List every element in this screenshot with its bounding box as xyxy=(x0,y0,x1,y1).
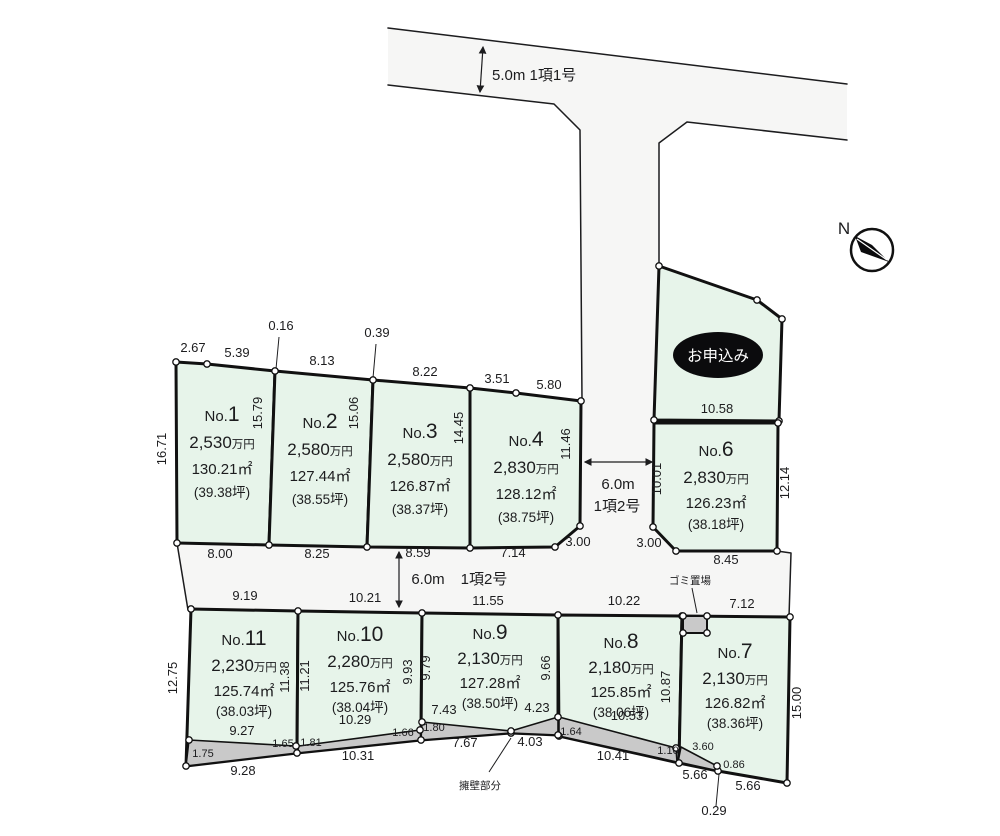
dimension-label: 1.65 xyxy=(272,738,293,750)
plot-area-size: 127.44㎡ xyxy=(290,468,351,485)
plot-area-size: 125.76㎡ xyxy=(330,679,391,696)
garbage-station-box xyxy=(683,616,707,633)
boundary-node xyxy=(774,548,780,554)
dimension-label: 10.31 xyxy=(342,748,375,763)
dimension-label: 10.87 xyxy=(658,671,673,704)
road-label-middle-type: 1項2号 xyxy=(461,571,508,588)
road-label-vertical-type: 1項2号 xyxy=(594,498,641,515)
dimension-label: 5.39 xyxy=(224,345,249,360)
plot-tsubo: (38.04坪) xyxy=(332,700,388,715)
boundary-node xyxy=(577,523,583,529)
dimension-label: 9.93 xyxy=(400,659,415,684)
boundary-node xyxy=(676,760,682,766)
dimension-label: 8.45 xyxy=(713,552,738,567)
dimension-label: 0.16 xyxy=(268,318,293,333)
retaining-wall-label: 擁壁部分 xyxy=(459,779,501,792)
boundary-node xyxy=(508,728,514,734)
boundary-node xyxy=(552,544,558,550)
dimension-label: 0.29 xyxy=(701,803,726,818)
boundary-node xyxy=(651,417,657,423)
site-plan-svg: 2.675.390.168.130.398.223.515.8016.7115.… xyxy=(0,0,1000,836)
plot-area-size: 126.87㎡ xyxy=(390,478,451,495)
dimension-label: 10.01 xyxy=(649,463,664,496)
plot-area-size: 128.12㎡ xyxy=(496,486,557,503)
plot-tsubo: (38.75坪) xyxy=(498,510,554,525)
dimension-label: 9.66 xyxy=(538,655,553,680)
dimension-label: 10.22 xyxy=(608,593,641,608)
dimension-label: 9.28 xyxy=(230,763,255,778)
boundary-node xyxy=(704,613,710,619)
boundary-node xyxy=(680,630,686,636)
plot-tsubo: (38.36坪) xyxy=(707,716,763,731)
boundary-node xyxy=(173,359,179,365)
boundary-node xyxy=(419,610,425,616)
boundary-node xyxy=(754,297,760,303)
boundary-node xyxy=(467,385,473,391)
dimension-label: 1.80 xyxy=(423,722,444,734)
plot-area-size: 125.74㎡ xyxy=(214,683,275,700)
dimension-label: 5.66 xyxy=(682,767,707,782)
road-edge-right xyxy=(659,122,847,266)
dimension-label: 15.79 xyxy=(250,397,265,430)
plot-tsubo: (38.03坪) xyxy=(216,704,272,719)
boundary-node xyxy=(272,368,278,374)
plot-tsubo: (38.55坪) xyxy=(292,492,348,507)
dimension-label: 12.75 xyxy=(165,662,180,695)
boundary-node xyxy=(188,606,194,612)
dimension-label: 8.22 xyxy=(412,364,437,379)
garbage-station-label: ゴミ置場 xyxy=(669,574,711,587)
dimension-label: 7.12 xyxy=(729,596,754,611)
dimension-label: 16.71 xyxy=(154,433,169,466)
boundary-node xyxy=(650,524,656,530)
dimension-label: 11.38 xyxy=(277,661,292,693)
dimension-label: 11.21 xyxy=(297,660,312,692)
dimension-label: 15.06 xyxy=(346,397,361,430)
boundary-node xyxy=(417,727,423,733)
dimension-label: 1.75 xyxy=(192,748,213,760)
boundary-node xyxy=(680,613,686,619)
boundary-node xyxy=(418,737,424,743)
road-label-vertical-width: 6.0m xyxy=(601,476,634,493)
boundary-node xyxy=(204,361,210,367)
boundary-node xyxy=(704,630,710,636)
dimension-label: 14.45 xyxy=(451,412,466,445)
boundary-node xyxy=(779,316,785,322)
boundary-node xyxy=(174,540,180,546)
dimension-label: 3.00 xyxy=(565,534,590,549)
dimension-label: 0.39 xyxy=(364,325,389,340)
dimension-label: 9.19 xyxy=(232,588,257,603)
boundary-node xyxy=(266,542,272,548)
site-plan-page: 2.675.390.168.130.398.223.515.8016.7115.… xyxy=(0,0,1000,836)
dimension-label: 8.25 xyxy=(304,546,329,561)
boundary-node xyxy=(183,763,189,769)
plot-1-area xyxy=(176,362,275,545)
leader-039 xyxy=(373,344,376,378)
boundary-node xyxy=(294,750,300,756)
dimension-label: 2.67 xyxy=(180,340,205,355)
plot-tsubo: (38.18坪) xyxy=(688,517,744,532)
boundary-node xyxy=(295,608,301,614)
boundary-node xyxy=(578,398,584,404)
road-label-top: 5.0m 1項1号 xyxy=(492,67,576,84)
compass-n-label: N xyxy=(838,219,850,238)
dimension-label: 5.66 xyxy=(735,778,760,793)
road-label-middle-width: 6.0m xyxy=(411,571,444,588)
boundary-node xyxy=(293,743,299,749)
boundary-node xyxy=(467,545,473,551)
dimension-label: 1.10 xyxy=(657,745,678,757)
plot-tsubo: (38.37坪) xyxy=(392,502,448,517)
dimension-label: 10.21 xyxy=(349,590,382,605)
dimension-label: 1.64 xyxy=(560,726,581,738)
leader-029 xyxy=(716,774,719,806)
plot-area-size: 130.21㎡ xyxy=(192,461,253,478)
plot-area-size: 127.28㎡ xyxy=(460,675,521,692)
dimension-label: 7.43 xyxy=(431,702,456,717)
dimension-label: 1.81 xyxy=(300,737,321,749)
boundary-node xyxy=(787,614,793,620)
plot-tsubo: (38.50坪) xyxy=(462,696,518,711)
boundary-node xyxy=(364,544,370,550)
dimension-label: 3.51 xyxy=(484,371,509,386)
leader-wall xyxy=(489,738,511,772)
boundary-node xyxy=(673,548,679,554)
dimension-label: 9.27 xyxy=(229,723,254,738)
dimension-label: 4.23 xyxy=(524,700,549,715)
boundary-node xyxy=(555,714,561,720)
dimension-label: 4.03 xyxy=(517,734,542,749)
dimension-label: 8.59 xyxy=(405,545,430,560)
compass: N xyxy=(838,219,893,271)
plot-area-size: 126.23㎡ xyxy=(686,495,747,512)
boundary-node xyxy=(513,390,519,396)
plot-5-application-badge: お申込み xyxy=(673,332,763,378)
dimension-label: 9.79 xyxy=(418,655,433,680)
dimension-label: 10.41 xyxy=(597,748,630,763)
dimension-label: 11.46 xyxy=(558,428,573,460)
dimension-label: 10.58 xyxy=(701,401,734,416)
plot-area-size: 126.82㎡ xyxy=(705,695,766,712)
dimension-label: 15.00 xyxy=(789,687,804,720)
plot-10-label: No.10 2,280万円 125.76㎡ (38.04坪) xyxy=(327,623,393,715)
dimension-label: 7.67 xyxy=(452,735,477,750)
dimension-label: 12.14 xyxy=(777,467,792,500)
plot-tsubo: (39.38坪) xyxy=(194,485,250,500)
dimension-label: 0.86 xyxy=(723,759,744,771)
boundary-node xyxy=(714,763,720,769)
dimension-label: 7.14 xyxy=(500,545,525,560)
road-edge-left xyxy=(388,85,582,401)
boundary-node xyxy=(186,737,192,743)
boundary-node xyxy=(555,612,561,618)
boundary-node xyxy=(370,377,376,383)
plot-area-size: 125.85㎡ xyxy=(591,684,652,701)
dimension-label: 1.66 xyxy=(392,727,413,739)
boundary-node xyxy=(775,420,781,426)
boundary-node xyxy=(784,780,790,786)
leader-016 xyxy=(276,337,279,369)
dimension-label: 3.60 xyxy=(692,741,713,753)
dimension-label: 5.80 xyxy=(536,377,561,392)
plot-tsubo: (38.06坪) xyxy=(593,705,649,720)
boundary-node xyxy=(656,263,662,269)
dimension-label: 11.55 xyxy=(472,593,504,608)
dimension-label: 8.13 xyxy=(309,353,334,368)
dimension-label: 8.00 xyxy=(207,546,232,561)
dimension-label: 3.00 xyxy=(636,535,661,550)
application-badge-text: お申込み xyxy=(687,347,749,365)
